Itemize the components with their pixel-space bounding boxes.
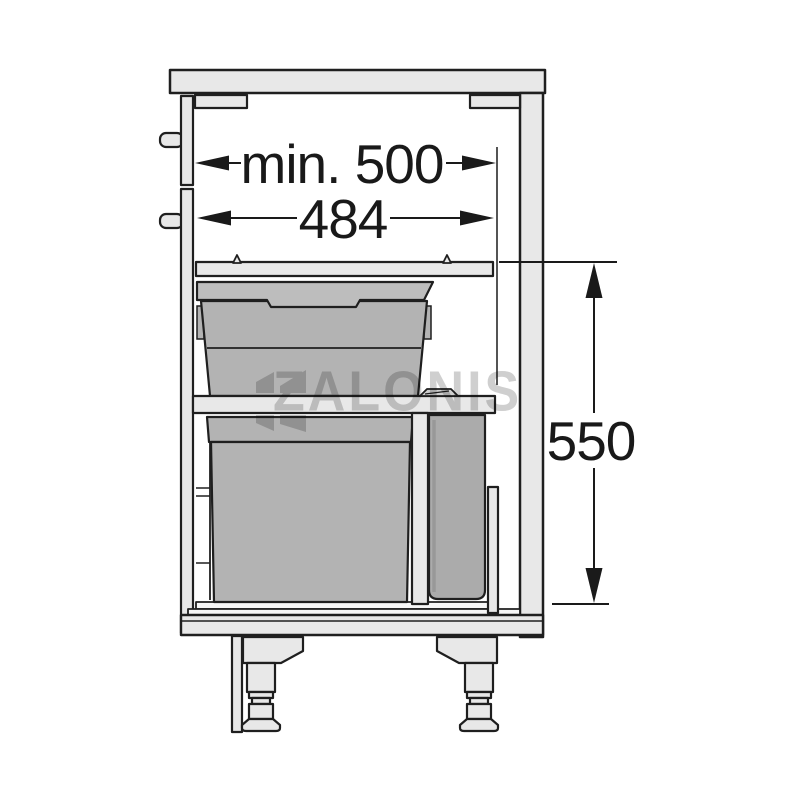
adjustable-feet bbox=[232, 636, 498, 732]
unit-width-label: 484 bbox=[299, 187, 388, 251]
front-door-panel bbox=[181, 189, 193, 633]
frame-top-rail bbox=[196, 262, 493, 276]
cabinet-top-panel bbox=[170, 70, 545, 93]
middle-platform bbox=[193, 396, 495, 413]
small-bin bbox=[429, 415, 485, 599]
top-stretcher-left bbox=[195, 95, 247, 108]
right-foot-lower bbox=[467, 704, 491, 719]
arrowhead-left-icon bbox=[197, 211, 231, 226]
lower-bin-body bbox=[211, 442, 410, 602]
frame-right-upright bbox=[488, 487, 498, 613]
technical-drawing bbox=[0, 0, 800, 800]
arrowhead-up-icon bbox=[586, 263, 603, 298]
left-foot-stem bbox=[247, 663, 275, 692]
lower-bin-rim bbox=[207, 417, 413, 442]
bin-divider-post bbox=[412, 413, 428, 604]
rail-pin-right bbox=[443, 255, 451, 263]
left-foot-top-block bbox=[243, 637, 303, 663]
waste-bins bbox=[193, 282, 495, 604]
arrowhead-left-icon bbox=[195, 156, 229, 171]
right-foot-stem bbox=[465, 663, 493, 692]
hinge-peg-top bbox=[160, 133, 183, 147]
arrowhead-right-icon bbox=[462, 156, 496, 171]
arrowhead-down-icon bbox=[586, 568, 603, 603]
left-foot-base bbox=[242, 719, 280, 731]
unit-height-label: 550 bbox=[547, 409, 636, 473]
cabinet-waste-bin-diagram: min. 500 484 550 ZALONIS bbox=[0, 0, 800, 800]
left-foot-front-plate bbox=[232, 636, 242, 732]
rail-pin-left bbox=[233, 255, 241, 263]
left-foot-lower bbox=[249, 704, 273, 719]
right-foot-top-block bbox=[437, 637, 497, 663]
top-stretcher-right bbox=[470, 95, 520, 108]
arrowhead-right-icon bbox=[460, 211, 494, 226]
right-side-panel bbox=[520, 93, 543, 637]
hinge-peg-bottom bbox=[160, 214, 183, 228]
cabinet-bottom-panel bbox=[181, 615, 543, 635]
right-foot-base bbox=[460, 719, 498, 731]
front-panel-upper bbox=[181, 96, 193, 185]
